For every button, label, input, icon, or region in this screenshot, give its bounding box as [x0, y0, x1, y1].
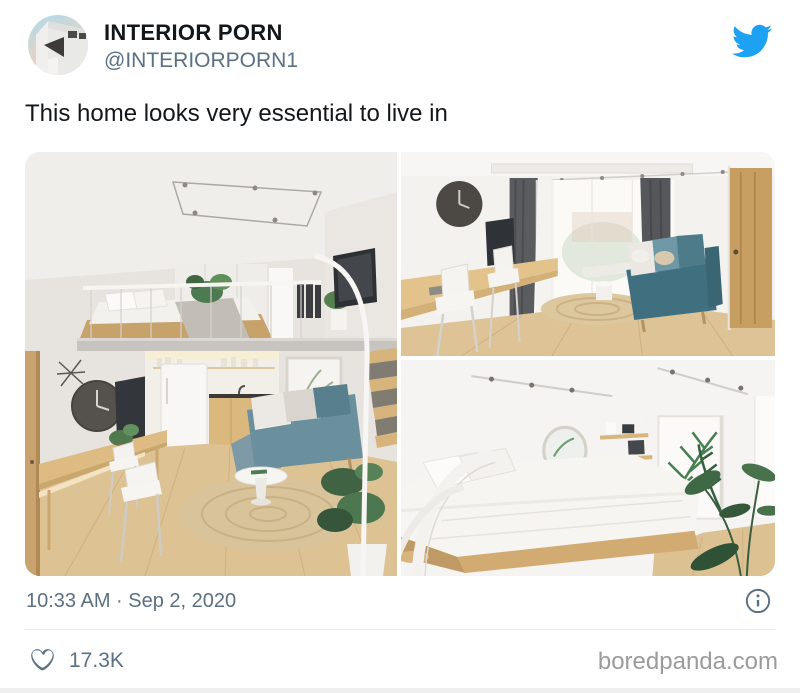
- info-circle-icon[interactable]: [745, 588, 771, 614]
- account-name[interactable]: INTERIOR PORN: [104, 20, 283, 46]
- twitter-bird-glyph: [732, 21, 772, 61]
- bedroom-illustration: [401, 360, 775, 576]
- account-handle[interactable]: @INTERIORPORN1: [104, 49, 298, 73]
- tweet-timestamp[interactable]: 10:33 AM · Sep 2, 2020: [26, 590, 236, 613]
- photo-bedroom[interactable]: [401, 360, 775, 576]
- living-room-illustration: [401, 152, 775, 356]
- info-glyph: [745, 588, 771, 614]
- tweet-photo-grid: [25, 152, 775, 576]
- watermark-text: boredpanda.com: [598, 648, 778, 676]
- heart-like-icon[interactable]: [29, 646, 56, 673]
- avatar[interactable]: [28, 15, 88, 75]
- heart-glyph: [29, 646, 56, 673]
- like-count[interactable]: 17.3K: [69, 649, 124, 673]
- bottom-edge-strip: [0, 688, 800, 693]
- photo-loft-apartment[interactable]: [25, 152, 397, 576]
- twitter-bird-icon[interactable]: [732, 21, 772, 61]
- tweet-text: This home looks very essential to live i…: [25, 100, 765, 128]
- divider: [25, 629, 775, 630]
- loft-apartment-illustration: [25, 152, 397, 576]
- photo-living-room[interactable]: [401, 152, 775, 356]
- building-avatar-image: [28, 15, 88, 75]
